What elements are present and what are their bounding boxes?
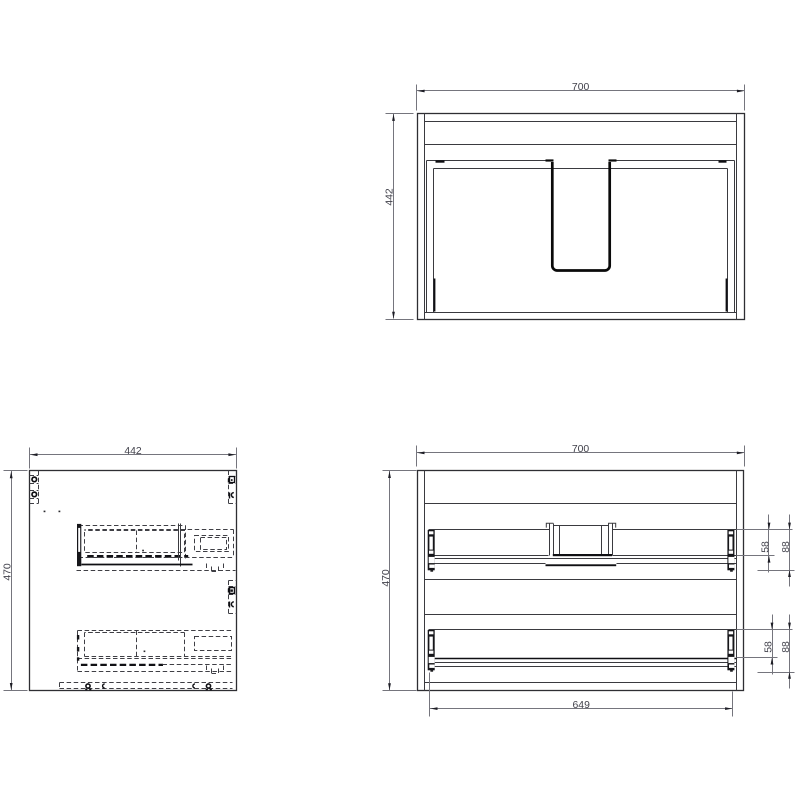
svg-text:649: 649 [573, 700, 591, 711]
svg-text:700: 700 [572, 82, 590, 93]
svg-text:58: 58 [763, 641, 774, 653]
svg-text:88: 88 [781, 641, 792, 653]
svg-text:58: 58 [760, 541, 771, 553]
svg-text:470: 470 [3, 563, 14, 581]
svg-text:470: 470 [381, 569, 392, 587]
svg-text:700: 700 [572, 444, 590, 455]
svg-text:442: 442 [124, 446, 142, 457]
svg-text:88: 88 [781, 541, 792, 553]
svg-text:442: 442 [385, 188, 396, 206]
